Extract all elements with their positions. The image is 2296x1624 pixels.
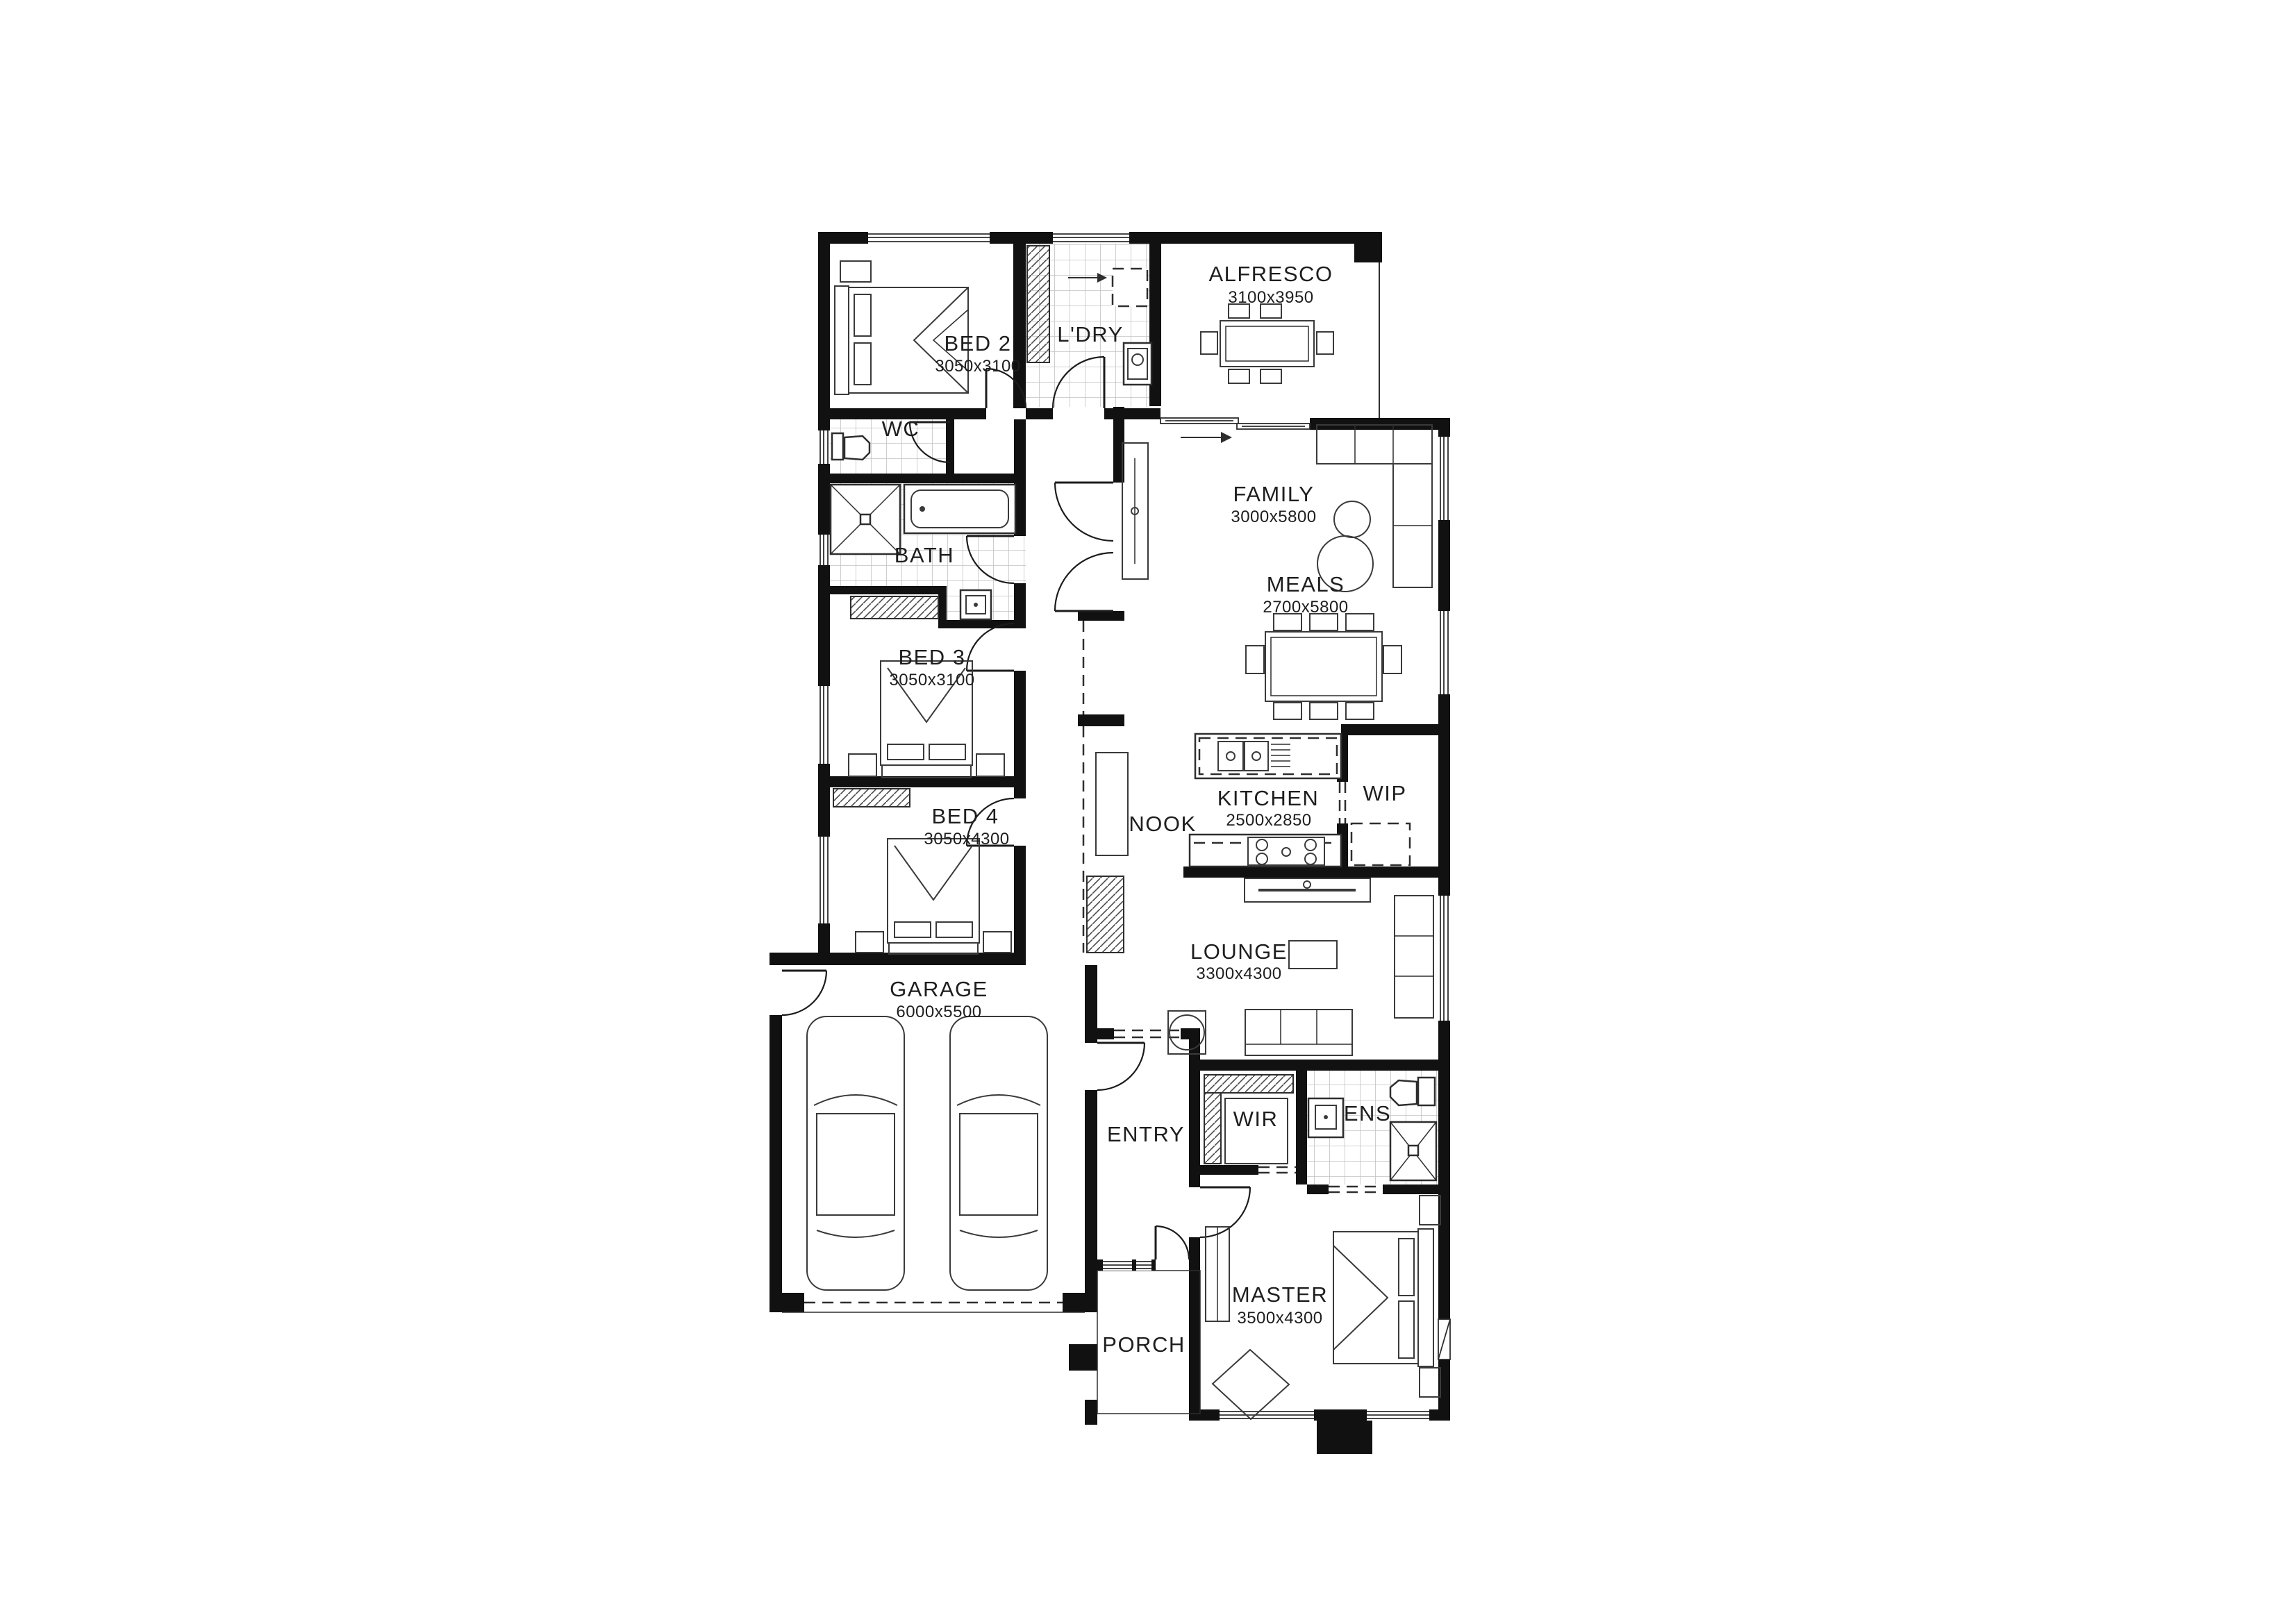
room-label-meals: MEALS [1267, 572, 1345, 596]
garage-door-pier-right [1063, 1293, 1097, 1312]
ens-shower-icon [1390, 1122, 1436, 1180]
room-label-bed3: BED 3 [898, 645, 965, 669]
room-label-entry: ENTRY [1107, 1122, 1185, 1146]
double-doors-hall-family [1055, 483, 1113, 611]
nightstand-icon [1420, 1196, 1440, 1225]
room-label-bed2: BED 2 [944, 331, 1011, 355]
porch-pier-small [1085, 1400, 1097, 1425]
door-front [1156, 1226, 1189, 1259]
alfresco-dining-table-icon [1201, 304, 1333, 383]
sliding-door [1161, 418, 1310, 429]
room-label-wir: WIR [1233, 1107, 1279, 1131]
window [818, 686, 830, 764]
window [1438, 437, 1450, 520]
window [1438, 611, 1450, 694]
family-corner-sofa-icon [1317, 425, 1432, 587]
rug-icon [1213, 1350, 1289, 1419]
front-pier [1317, 1421, 1372, 1454]
door-master [1200, 1187, 1250, 1237]
window [1438, 896, 1450, 1021]
master-bed-icon [1333, 1196, 1440, 1397]
washing-machine-icon [1113, 269, 1147, 306]
window [1053, 232, 1129, 244]
room-label-ldry: L'DRY [1057, 322, 1124, 346]
side-table-icon [1334, 501, 1370, 537]
shower-icon [831, 485, 900, 554]
room-label-wip: WIP [1363, 781, 1406, 805]
nightstand-icon [1420, 1368, 1440, 1397]
garage-door-pier-left [770, 1293, 804, 1312]
room-dims-master: 3500x4300 [1237, 1309, 1322, 1328]
room-label-porch: PORCH [1102, 1332, 1185, 1357]
kitchen-bench-cooktop [1190, 835, 1341, 867]
ens-vanity-icon [1308, 1098, 1343, 1137]
room-label-kitchen: KITCHEN [1217, 786, 1320, 810]
wir-shelf-top [1204, 1075, 1293, 1093]
family-tv-unit-icon [1122, 443, 1148, 579]
bed2-robe [1027, 246, 1049, 362]
window [818, 837, 830, 923]
flow-arrow-icon [1181, 432, 1232, 443]
lounge-sofa-icon [1245, 1010, 1352, 1055]
room-label-bed4: BED 4 [931, 804, 999, 828]
window [868, 232, 990, 244]
bed4-robe [833, 789, 910, 807]
ens-toilet-icon [1390, 1078, 1435, 1105]
bathtub-icon [904, 485, 1015, 533]
room-label-master: MASTER [1232, 1282, 1328, 1307]
nightstand-icon [856, 932, 883, 953]
door-garage-entry [1097, 1043, 1145, 1090]
room-label-lounge: LOUNGE [1190, 939, 1288, 964]
room-dims-meals: 2700x5800 [1263, 598, 1348, 617]
sidelight-window [1103, 1259, 1132, 1271]
room-label-bath: BATH [895, 543, 954, 567]
cooktop-icon [1248, 837, 1324, 865]
nightstand-icon [849, 754, 876, 776]
room-label-family: FAMILY [1233, 482, 1315, 506]
room-label-garage: GARAGE [890, 977, 988, 1001]
window [1367, 1409, 1429, 1421]
door-garage-side [782, 971, 826, 1015]
floor-plan-drawing: BED 2 3050x3100 L'DRY ALFRESCO 3100x3950… [0, 0, 2296, 1624]
room-dims-bed3: 3050x3100 [889, 671, 974, 689]
room-label-alfresco: ALFRESCO [1208, 262, 1333, 286]
vanity-basin-icon [960, 590, 991, 619]
room-dims-family: 3000x5800 [1231, 508, 1316, 526]
bed3-robe [851, 596, 938, 619]
window-corner-marker [1438, 1319, 1450, 1359]
lounge-tv-unit-icon [1245, 878, 1370, 902]
bed4-bed-icon [856, 839, 1011, 954]
nook-desk [1096, 753, 1128, 855]
pantry-shelf [1351, 823, 1410, 865]
room-dims-lounge: 3300x4300 [1196, 964, 1281, 983]
room-dims-alfresco: 3100x3950 [1228, 288, 1313, 307]
chaise-sofa-icon [1395, 896, 1433, 1018]
room-dims-kitchen: 2500x2850 [1226, 811, 1311, 830]
sidelight-window [1136, 1259, 1151, 1271]
window [818, 535, 830, 565]
porch-pier [1069, 1344, 1097, 1371]
nightstand-icon [983, 932, 1011, 953]
nightstand-icon [840, 261, 871, 282]
toilet-icon [832, 433, 870, 460]
window [818, 430, 830, 464]
alfresco-corner-pier [1354, 232, 1382, 262]
wir-shelf-left [1204, 1093, 1221, 1164]
room-label-nook: NOOK [1129, 812, 1196, 836]
room-dims-bed4: 3050x4300 [924, 830, 1009, 848]
linen-cupboard [1087, 876, 1124, 953]
room-label-ens: ENS [1344, 1101, 1391, 1125]
laundry-trough-icon [1124, 343, 1151, 385]
coffee-table-icon [1289, 941, 1337, 969]
car-icon [950, 1016, 1047, 1290]
nightstand-icon [976, 754, 1004, 776]
room-dims-garage: 6000x5500 [896, 1003, 981, 1021]
kitchen-island [1195, 734, 1341, 778]
room-label-wc: WC [882, 417, 920, 441]
car-icon [807, 1016, 904, 1290]
window [1220, 1409, 1314, 1421]
room-dims-bed2: 3050x3100 [935, 357, 1020, 376]
floor-plan-page: BED 2 3050x3100 L'DRY ALFRESCO 3100x3950… [0, 0, 2296, 1624]
door-bed3 [967, 623, 1014, 671]
meals-dining-table-icon [1246, 614, 1401, 719]
